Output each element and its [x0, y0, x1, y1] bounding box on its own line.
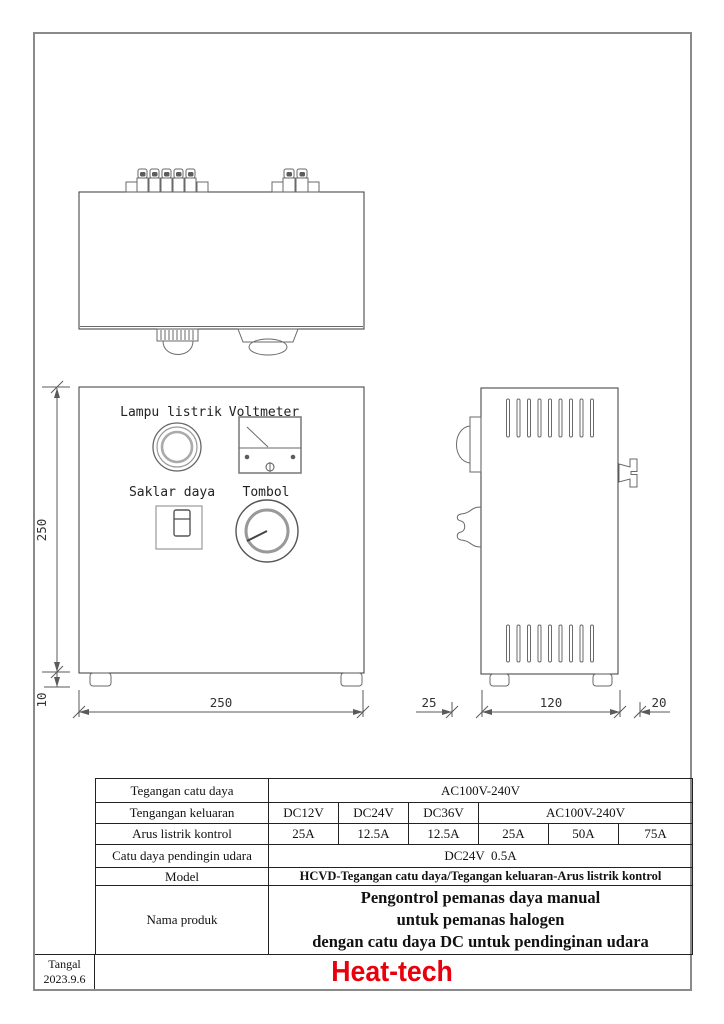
cell-value: DC12V	[269, 803, 339, 824]
front-foot-right	[341, 673, 362, 686]
product-name-line: Pengontrol pemanas daya manual	[269, 887, 692, 909]
dim-front-width: 250	[73, 690, 369, 718]
svg-text:120: 120	[540, 695, 563, 710]
row-label: Arus listrik kontrol	[96, 824, 269, 845]
row-label: Nama produk	[96, 886, 269, 955]
table-row: Catu daya pendingin udara DC24V 0.5A	[96, 845, 693, 868]
drawing-sheet-canvas: Lampu listrik Voltmeter Saklar daya Tomb…	[0, 0, 724, 1024]
cell-value: AC100V-240V	[479, 803, 693, 824]
cell-value: 12.5A	[339, 824, 409, 845]
table-row: Arus listrik kontrol 25A 12.5A 12.5A 25A…	[96, 824, 693, 845]
cell-value: DC24V	[339, 803, 409, 824]
power-switch	[156, 506, 202, 549]
row-label: Tegangan catu daya	[96, 779, 269, 803]
svg-text:25: 25	[421, 695, 436, 710]
switch-label: Saklar daya	[129, 485, 215, 500]
terminal-block-2pole	[272, 169, 319, 192]
svg-text:20: 20	[651, 695, 666, 710]
sheet-frame: Lampu listrik Voltmeter Saklar daya Tomb…	[33, 32, 692, 991]
rear-connector	[238, 329, 298, 355]
svg-text:250: 250	[35, 519, 49, 542]
side-view	[457, 388, 638, 686]
product-name-line: untuk pemanas halogen	[269, 909, 692, 931]
side-lamp-profile	[457, 417, 482, 472]
svg-text:250: 250	[210, 695, 233, 710]
table-row: Tengangan keluaran DC12V DC24V DC36V AC1…	[96, 803, 693, 824]
title-block: Tangal 2023.9.6 Heat-tech	[35, 954, 690, 989]
spec-table: Tegangan catu daya AC100V-240V Tengangan…	[95, 778, 693, 955]
product-name-cell: Pengontrol pemanas daya manual untuk pem…	[269, 886, 693, 955]
side-foot-left	[490, 674, 509, 686]
table-row: Tegangan catu daya AC100V-240V	[96, 779, 693, 803]
cell-value: DC36V	[409, 803, 479, 824]
brand-cell: Heat-tech	[95, 955, 690, 989]
table-row: Nama produk Pengontrol pemanas daya manu…	[96, 886, 693, 955]
vent-slots-top	[507, 399, 594, 437]
brand-logo: Heat-tech	[332, 956, 454, 989]
dim-feet-height: 10	[35, 664, 70, 708]
cell-value: 25A	[269, 824, 339, 845]
model-value: HCVD-Tegangan catu daya/Tegangan keluara…	[269, 868, 693, 886]
side-terminal-profile	[619, 459, 637, 487]
side-foot-right	[593, 674, 612, 686]
front-view: Lampu listrik Voltmeter Saklar daya Tomb…	[79, 387, 364, 686]
row-label: Tengangan keluaran	[96, 803, 269, 824]
dim-side-left: 25	[416, 695, 458, 718]
dimension-annotations: 250 10 250	[35, 381, 670, 718]
terminal-block-5pole	[126, 169, 208, 192]
row-value: AC100V-240V	[269, 779, 693, 803]
dim-side-right: 20	[634, 695, 670, 718]
date-value: 2023.9.6	[44, 972, 86, 987]
voltmeter	[239, 417, 301, 473]
cell-value: 50A	[549, 824, 619, 845]
product-name-line: dengan catu daya DC untuk pendinginan ud…	[269, 931, 692, 953]
cell-value: 12.5A	[409, 824, 479, 845]
table-row: Model HCVD-Tegangan catu daya/Tegangan k…	[96, 868, 693, 886]
date-cell: Tangal 2023.9.6	[35, 955, 95, 989]
row-value: DC24V 0.5A	[269, 845, 693, 868]
vent-slots-bottom	[507, 625, 594, 662]
dial-knob	[236, 500, 298, 562]
lamp-label: Lampu listrik	[120, 405, 222, 420]
svg-text:10: 10	[35, 692, 49, 707]
cell-value: 25A	[479, 824, 549, 845]
cable-gland	[157, 329, 198, 355]
date-label: Tangal	[48, 957, 80, 972]
side-knob-profile	[457, 507, 481, 547]
top-view	[79, 169, 364, 355]
row-label: Catu daya pendingin udara	[96, 845, 269, 868]
knob-label: Tombol	[243, 485, 290, 500]
cell-value: 75A	[619, 824, 693, 845]
dim-front-height: 250	[35, 381, 70, 678]
voltmeter-needle	[247, 427, 268, 447]
front-foot-left	[90, 673, 111, 686]
pilot-lamp	[153, 423, 201, 471]
dim-side-depth: 120	[476, 690, 626, 718]
row-label: Model	[96, 868, 269, 886]
